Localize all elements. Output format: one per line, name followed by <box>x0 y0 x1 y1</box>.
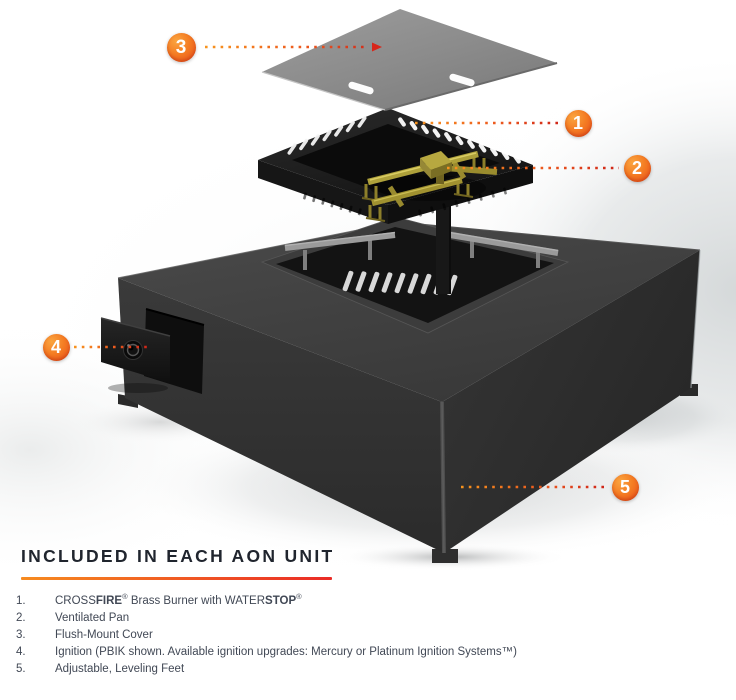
callout-2: 2 <box>624 155 651 182</box>
part-row-5: 5.Adjustable, Leveling Feet <box>16 661 736 678</box>
part-row-2: 2.Ventilated Pan <box>16 610 736 627</box>
parts-section: INCLUDED IN EACH AON UNIT 1.CROSSFIRE® B… <box>0 546 736 678</box>
part-label: Ignition (PBIK shown. Available ignition… <box>55 644 736 661</box>
part-row-4: 4.Ignition (PBIK shown. Available igniti… <box>16 644 736 661</box>
part-label: Ventilated Pan <box>55 610 736 627</box>
part-label: CROSSFIRE® Brass Burner with WATERSTOP® <box>55 593 736 610</box>
part-number: 4. <box>16 644 55 661</box>
burner-post <box>436 206 451 294</box>
callout-5: 5 <box>612 474 639 501</box>
callout-4: 4 <box>43 334 70 361</box>
part-number: 2. <box>16 610 55 627</box>
callout-3: 3 <box>167 33 196 62</box>
part-number: 1. <box>16 593 55 610</box>
accent-divider <box>21 577 332 580</box>
part-label: Flush-Mount Cover <box>55 627 736 644</box>
part-number: 5. <box>16 661 55 678</box>
part-row-3: 3.Flush-Mount Cover <box>16 627 736 644</box>
callout-1: 1 <box>565 110 592 137</box>
section-title: INCLUDED IN EACH AON UNIT <box>21 546 736 567</box>
exploded-view-scene: 1 2 3 4 5 <box>0 0 736 575</box>
part-row-1: 1.CROSSFIRE® Brass Burner with WATERSTOP… <box>16 593 736 610</box>
parts-list: 1.CROSSFIRE® Brass Burner with WATERSTOP… <box>16 593 736 678</box>
aon-unit-exploded-diagram-page: 1 2 3 4 5 INCLUDED IN EACH AON UNIT 1.CR… <box>0 0 736 700</box>
part-label: Adjustable, Leveling Feet <box>55 661 736 678</box>
part-number: 3. <box>16 627 55 644</box>
